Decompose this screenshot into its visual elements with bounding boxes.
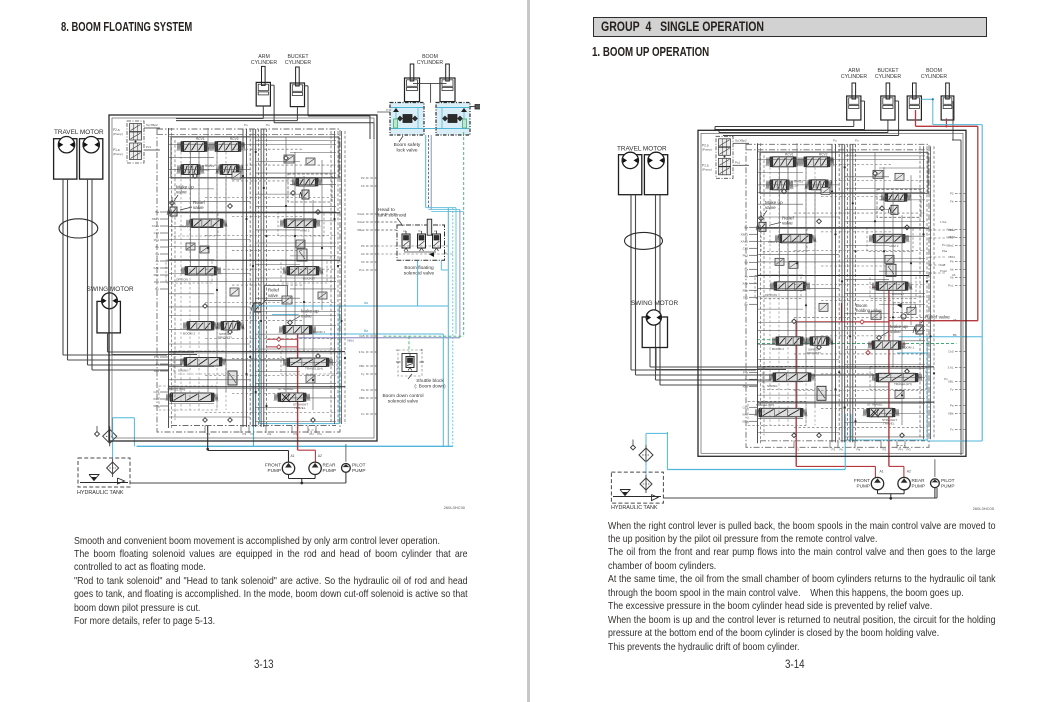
svg-text:Pa: Pa	[857, 447, 861, 451]
svg-text:lock valve: lock valve	[396, 148, 417, 154]
svg-text:B: B	[421, 348, 423, 352]
svg-text:PG: PG	[907, 447, 912, 451]
svg-text:Bx: Bx	[155, 245, 159, 249]
svg-text:Pu: Pu	[855, 138, 859, 142]
svg-text:Fb: Fb	[361, 184, 365, 188]
svg-text:OPTION: OPTION	[765, 293, 777, 297]
svg-text:Boom safety: Boom safety	[394, 142, 421, 148]
svg-text:PnL: PnL	[948, 284, 954, 288]
svg-text:CYLINDER: CYLINDER	[251, 60, 277, 66]
svg-text:Relief: Relief	[268, 288, 280, 293]
svg-text:Pba: Pba	[942, 249, 948, 253]
svg-text:XAa2: XAa2	[357, 220, 365, 224]
svg-text:P1: P1	[207, 432, 211, 436]
svg-text:Pb1: Pb1	[154, 238, 160, 242]
svg-text:Ba: Ba	[155, 210, 159, 214]
svg-text:BOOM 2: BOOM 2	[183, 332, 195, 336]
svg-text:Dr1: Dr1	[743, 296, 748, 300]
svg-text:Sa: Sa	[155, 252, 159, 256]
svg-text:P3: P3	[832, 447, 836, 451]
svg-text:3.6L: 3.6L	[359, 350, 365, 354]
svg-text:Aa: Aa	[155, 362, 159, 366]
svg-text:Pu: Pu	[266, 123, 270, 127]
svg-text:Cd3: Cd3	[153, 390, 159, 394]
svg-text:PILOT: PILOT	[941, 478, 955, 483]
svg-text:XBs: XBs	[742, 385, 748, 389]
svg-text:RCV1: RCV1	[196, 137, 205, 141]
svg-text:Stj XBp2: Stj XBp2	[146, 123, 158, 127]
svg-text:TRAVEL MOTOR: TRAVEL MOTOR	[617, 146, 667, 153]
svg-text:(Pump): (Pump)	[702, 147, 712, 151]
svg-text:A1: A1	[403, 229, 407, 233]
svg-text:A1: A1	[291, 454, 295, 458]
svg-text:valve: valve	[890, 329, 901, 334]
svg-text:PUMP: PUMP	[352, 468, 366, 473]
svg-text:XAa2: XAa2	[946, 236, 954, 240]
svg-text:Ba: Ba	[364, 329, 368, 333]
svg-text:valve: valve	[193, 205, 204, 210]
svg-text:HYDRAULIC TANK: HYDRAULIC TANK	[77, 490, 124, 496]
svg-text:Pi: Pi	[386, 108, 389, 112]
svg-text:BOOM 2: BOOM 2	[772, 347, 784, 351]
svg-text:valve: valve	[268, 293, 279, 298]
svg-text:XAa1: XAa1	[946, 228, 954, 232]
svg-text:Fb: Fb	[950, 200, 954, 204]
svg-text:Pa: Pa	[950, 404, 954, 408]
svg-text:valve: valve	[176, 190, 187, 195]
svg-text:XBs: XBs	[153, 369, 159, 373]
svg-text:CUT: CUT	[793, 183, 799, 187]
svg-text:CYLINDER: CYLINDER	[841, 74, 867, 80]
svg-text:Bn: Bn	[155, 287, 159, 291]
svg-text:260L3HC05: 260L3HC05	[973, 506, 995, 511]
svg-text:TRAVEL MOTOR: TRAVEL MOTOR	[54, 129, 104, 136]
svg-text:Pns: Pns	[154, 355, 160, 359]
svg-text:B6: B6	[953, 333, 957, 337]
svg-text:XBa2: XBa2	[946, 244, 954, 248]
svg-text:XBb1: XBb1	[948, 255, 955, 259]
svg-text:260L3HC30: 260L3HC30	[444, 505, 466, 510]
svg-text:Prot2: Prot2	[940, 269, 947, 273]
svg-text:(Pump): (Pump)	[702, 167, 712, 171]
svg-text:Pns: Pns	[743, 371, 749, 375]
svg-text:Pb: Pb	[950, 260, 954, 264]
svg-text:CUT: CUT	[204, 168, 210, 172]
svg-text:Boom down control: Boom down control	[382, 393, 423, 399]
svg-text:REAR: REAR	[323, 463, 337, 468]
svg-text:PUMP: PUMP	[941, 483, 955, 488]
svg-text:TRAVEL: TRAVEL	[883, 421, 895, 425]
svg-text:Head to: Head to	[378, 207, 395, 213]
svg-text:solenoid valve: solenoid valve	[404, 271, 435, 277]
svg-text:Pb1: Pb1	[743, 254, 749, 258]
svg-text:Fx: Fx	[950, 428, 954, 432]
svg-text:XAb: XAb	[742, 282, 748, 286]
svg-text:Aa: Aa	[364, 301, 368, 305]
svg-text:Fy: Fy	[950, 388, 954, 392]
svg-text:Cd3: Cd3	[742, 406, 748, 410]
svg-text:CYLINDER: CYLINDER	[875, 74, 901, 80]
svg-text:PnL: PnL	[359, 268, 365, 272]
svg-text:PH: PH	[310, 432, 314, 436]
svg-text:HYDRAULIC TANK: HYDRAULIC TANK	[611, 505, 658, 511]
svg-text:P2: P2	[883, 447, 887, 451]
svg-text:XBa2: XBa2	[357, 228, 365, 232]
svg-text:PH: PH	[899, 447, 903, 451]
svg-text:XBL: XBL	[948, 380, 954, 384]
svg-text:XBb1: XBb1	[347, 339, 354, 343]
svg-text:XBb: XBb	[359, 396, 365, 400]
svg-text:Fy: Fy	[361, 372, 365, 376]
svg-text:valve: valve	[765, 205, 776, 210]
svg-text:A2: A2	[434, 229, 438, 233]
svg-text:Aa: Aa	[744, 378, 748, 382]
svg-text:P3: P3	[243, 432, 247, 436]
svg-text:SWING MOTOR: SWING MOTOR	[631, 300, 678, 307]
svg-text:PUMP: PUMP	[267, 468, 281, 473]
svg-text:PUMP: PUMP	[856, 483, 870, 488]
svg-text:valve: valve	[782, 220, 793, 225]
svg-text:A6: A6	[953, 318, 957, 322]
svg-text:FRONT: FRONT	[854, 478, 870, 483]
svg-text:TRAVEL: TRAVEL	[294, 406, 306, 410]
svg-text:P2: P2	[950, 192, 954, 196]
svg-text:Pa: Pa	[268, 432, 272, 436]
svg-text:Ck3: Ck3	[743, 247, 749, 251]
svg-text:solenoid valve: solenoid valve	[388, 399, 419, 405]
svg-text:TRAVEL(LH): TRAVEL(LH)	[894, 382, 912, 386]
svg-text:CYLINDER: CYLINDER	[921, 74, 947, 80]
svg-text:PUMP: PUMP	[912, 483, 926, 488]
svg-text:XBb: XBb	[948, 412, 954, 416]
svg-text:A2: A2	[907, 469, 911, 473]
svg-text:Pu: Pu	[419, 229, 423, 233]
svg-text:Shuttle block: Shuttle block	[416, 378, 444, 384]
svg-text:Bn: Bn	[744, 303, 748, 307]
svg-text:(Pump): (Pump)	[113, 152, 123, 156]
svg-text:BUCKET: BUCKET	[303, 277, 316, 281]
svg-text:SWING: SWING	[178, 369, 189, 373]
svg-text:Xb: Xb	[950, 276, 954, 280]
svg-text:Xb: Xb	[361, 260, 365, 264]
svg-text:PUMP: PUMP	[323, 468, 337, 473]
svg-text:XAa1: XAa1	[357, 212, 365, 216]
svg-text:RCV2: RCV2	[230, 137, 239, 141]
svg-text:3.6L: 3.6L	[948, 366, 954, 370]
svg-text:TRAVEL(LH): TRAVEL(LH)	[305, 367, 323, 371]
svg-text:XBtr: XBtr	[153, 404, 159, 408]
svg-text:Pc1: Pc1	[146, 145, 152, 149]
svg-text:XBtr: XBtr	[742, 420, 748, 424]
svg-text:A2: A2	[318, 454, 322, 458]
svg-text:Pu: Pu	[840, 447, 844, 451]
svg-text:PRIORITY: PRIORITY	[218, 336, 232, 340]
svg-text:ARM 2: ARM 2	[300, 229, 310, 233]
svg-text:RCV2: RCV2	[819, 152, 828, 156]
svg-text:REAR: REAR	[912, 478, 926, 483]
svg-text:Stj XBp2: Stj XBp2	[735, 138, 747, 142]
svg-text:Ax: Ax	[744, 275, 748, 279]
svg-text:Pc1: Pc1	[735, 160, 741, 164]
svg-text:XAa1: XAa1	[152, 224, 160, 228]
svg-text:valve: valve	[301, 314, 312, 319]
svg-text:A1: A1	[880, 469, 884, 473]
svg-text:XBa1: XBa1	[152, 217, 160, 221]
svg-text:P2: P2	[361, 176, 365, 180]
svg-text:Ab: Ab	[950, 268, 954, 272]
svg-text:Ck5: Ck5	[359, 334, 365, 338]
svg-text:XAtr: XAtr	[153, 397, 159, 401]
svg-text:Ck3: Ck3	[154, 231, 160, 235]
svg-text:RCV1: RCV1	[785, 152, 794, 156]
svg-text:CYLINDER: CYLINDER	[417, 60, 443, 66]
svg-text:CYLINDER: CYLINDER	[285, 60, 311, 66]
svg-text:Ax: Ax	[155, 259, 159, 263]
svg-text:XAa1: XAa1	[741, 240, 749, 244]
svg-text:Pb: Pb	[361, 244, 365, 248]
svg-text:Sa: Sa	[744, 268, 748, 272]
svg-text:XAtr: XAtr	[742, 413, 748, 417]
svg-text:1.5ul: 1.5ul	[940, 220, 947, 224]
svg-text:XBb: XBb	[742, 289, 748, 293]
svg-text:PRIORITY: PRIORITY	[807, 351, 821, 355]
svg-text:BOOM 1: BOOM 1	[902, 345, 914, 349]
svg-text:(Pump): (Pump)	[113, 132, 123, 136]
svg-text:Pu: Pu	[244, 123, 248, 127]
svg-text:SWING MOTOR: SWING MOTOR	[87, 286, 134, 293]
svg-text:Dr1: Dr1	[154, 280, 159, 284]
svg-text:XBL: XBL	[359, 364, 365, 368]
svg-text:ARM 2: ARM 2	[889, 244, 899, 248]
svg-text:Ab: Ab	[361, 252, 365, 256]
svg-text:P2: P2	[294, 432, 298, 436]
svg-text:Pa: Pa	[361, 388, 365, 392]
svg-text:XBa1: XBa1	[741, 233, 749, 237]
svg-text:Fx: Fx	[361, 412, 365, 416]
svg-text:Boom floating: Boom floating	[404, 265, 434, 271]
svg-text:XBb: XBb	[153, 273, 159, 277]
svg-text:FRONT: FRONT	[265, 463, 281, 468]
svg-text:PILOT: PILOT	[352, 463, 366, 468]
svg-text:OPTION: OPTION	[176, 278, 188, 282]
svg-text:tank solenoid: tank solenoid	[378, 213, 407, 219]
svg-text:Ck5: Ck5	[948, 350, 954, 354]
svg-text:XAb: XAb	[153, 266, 159, 270]
svg-text:BOOM 1: BOOM 1	[313, 330, 325, 334]
svg-text:A: A	[396, 348, 398, 352]
svg-text:Pu: Pu	[833, 138, 837, 142]
svg-text:P1: P1	[796, 447, 800, 451]
svg-text:Ba: Ba	[744, 226, 748, 230]
svg-text:PG: PG	[318, 432, 323, 436]
svg-text:T: T	[445, 251, 447, 255]
svg-text:SWING: SWING	[767, 384, 778, 388]
svg-text:(: Boom down): (: Boom down)	[414, 384, 446, 390]
svg-text:BUCKET: BUCKET	[892, 292, 905, 296]
svg-text:Pu: Pu	[251, 432, 255, 436]
svg-text:Bx: Bx	[744, 261, 748, 265]
